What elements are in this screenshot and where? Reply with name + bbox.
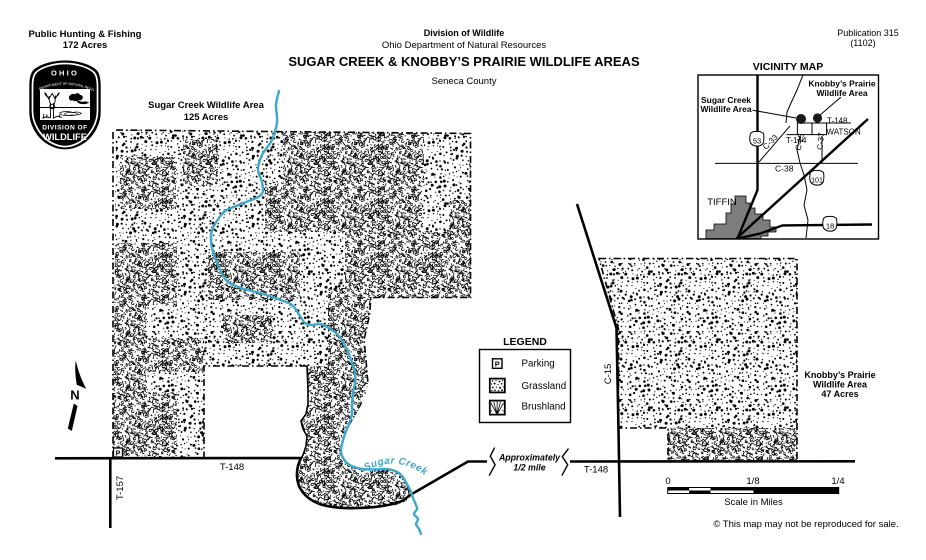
svg-text:Seneca County: Seneca County (432, 76, 497, 87)
svg-text:Wildlife Area: Wildlife Area (700, 104, 751, 114)
svg-text:1/8: 1/8 (746, 476, 759, 487)
svg-text:Public Hunting & Fishing: Public Hunting & Fishing (29, 29, 142, 40)
svg-text:1/2 mile: 1/2 mile (513, 463, 545, 473)
svg-text:Ohio Department of Natural Res: Ohio Department of Natural Resources (382, 40, 546, 51)
svg-text:Publication 315: Publication 315 (837, 28, 899, 38)
svg-text:T-148: T-148 (827, 117, 848, 126)
svg-text:N: N (70, 388, 79, 403)
svg-text:C-37: C-37 (816, 132, 827, 151)
svg-text:SUGAR CREEK & KNOBBY’S PRAIRIE: SUGAR CREEK & KNOBBY’S PRAIRIE WILDLIFE … (288, 54, 640, 69)
svg-text:TIFFIN: TIFFIN (707, 197, 737, 208)
svg-text:172 Acres: 172 Acres (63, 40, 108, 51)
svg-text:18: 18 (826, 222, 834, 231)
svg-text:VICINITY MAP: VICINITY MAP (753, 61, 823, 73)
svg-text:C-15: C-15 (603, 364, 614, 385)
svg-text:WATSON: WATSON (827, 128, 861, 137)
svg-text:Wildlife Area: Wildlife Area (816, 88, 867, 98)
svg-text:T-148: T-148 (584, 465, 608, 476)
svg-text:53: 53 (753, 137, 761, 146)
svg-text:T-157: T-157 (115, 476, 126, 500)
svg-text:Brushland: Brushland (522, 402, 566, 413)
svg-text:47 Acres: 47 Acres (821, 389, 858, 399)
svg-text:(1102): (1102) (850, 38, 875, 48)
svg-text:Wildlife Area: Wildlife Area (813, 380, 868, 390)
svg-text:P: P (495, 360, 500, 369)
svg-text:© This map may not be reproduc: © This map may not be reproduced for sal… (713, 519, 898, 530)
svg-text:Scale in Miles: Scale in Miles (724, 497, 783, 508)
svg-text:0: 0 (665, 476, 670, 487)
svg-text:LEGEND: LEGEND (503, 336, 547, 348)
svg-text:Sugar Creek Wildlife Area: Sugar Creek Wildlife Area (148, 100, 264, 111)
svg-text:1/4: 1/4 (831, 476, 844, 487)
svg-text:Knobby’s Prairie: Knobby’s Prairie (804, 370, 875, 380)
svg-text:P: P (116, 450, 121, 457)
svg-text:125 Acres: 125 Acres (184, 112, 229, 123)
svg-text:OHIO: OHIO (51, 69, 79, 78)
svg-text:Division of Wildlife: Division of Wildlife (424, 28, 504, 38)
svg-text:C-38: C-38 (775, 164, 794, 174)
svg-text:Parking: Parking (522, 359, 555, 370)
svg-text:WILDLIFE: WILDLIFE (43, 132, 87, 142)
svg-text:DIVISION OF: DIVISION OF (42, 125, 87, 132)
svg-text:Approximately: Approximately (498, 453, 561, 463)
svg-text:101: 101 (811, 178, 823, 185)
svg-text:T-148: T-148 (220, 462, 244, 473)
svg-text:Grassland: Grassland (522, 381, 567, 392)
svg-text:Knobby’s Prairie: Knobby’s Prairie (808, 79, 876, 89)
